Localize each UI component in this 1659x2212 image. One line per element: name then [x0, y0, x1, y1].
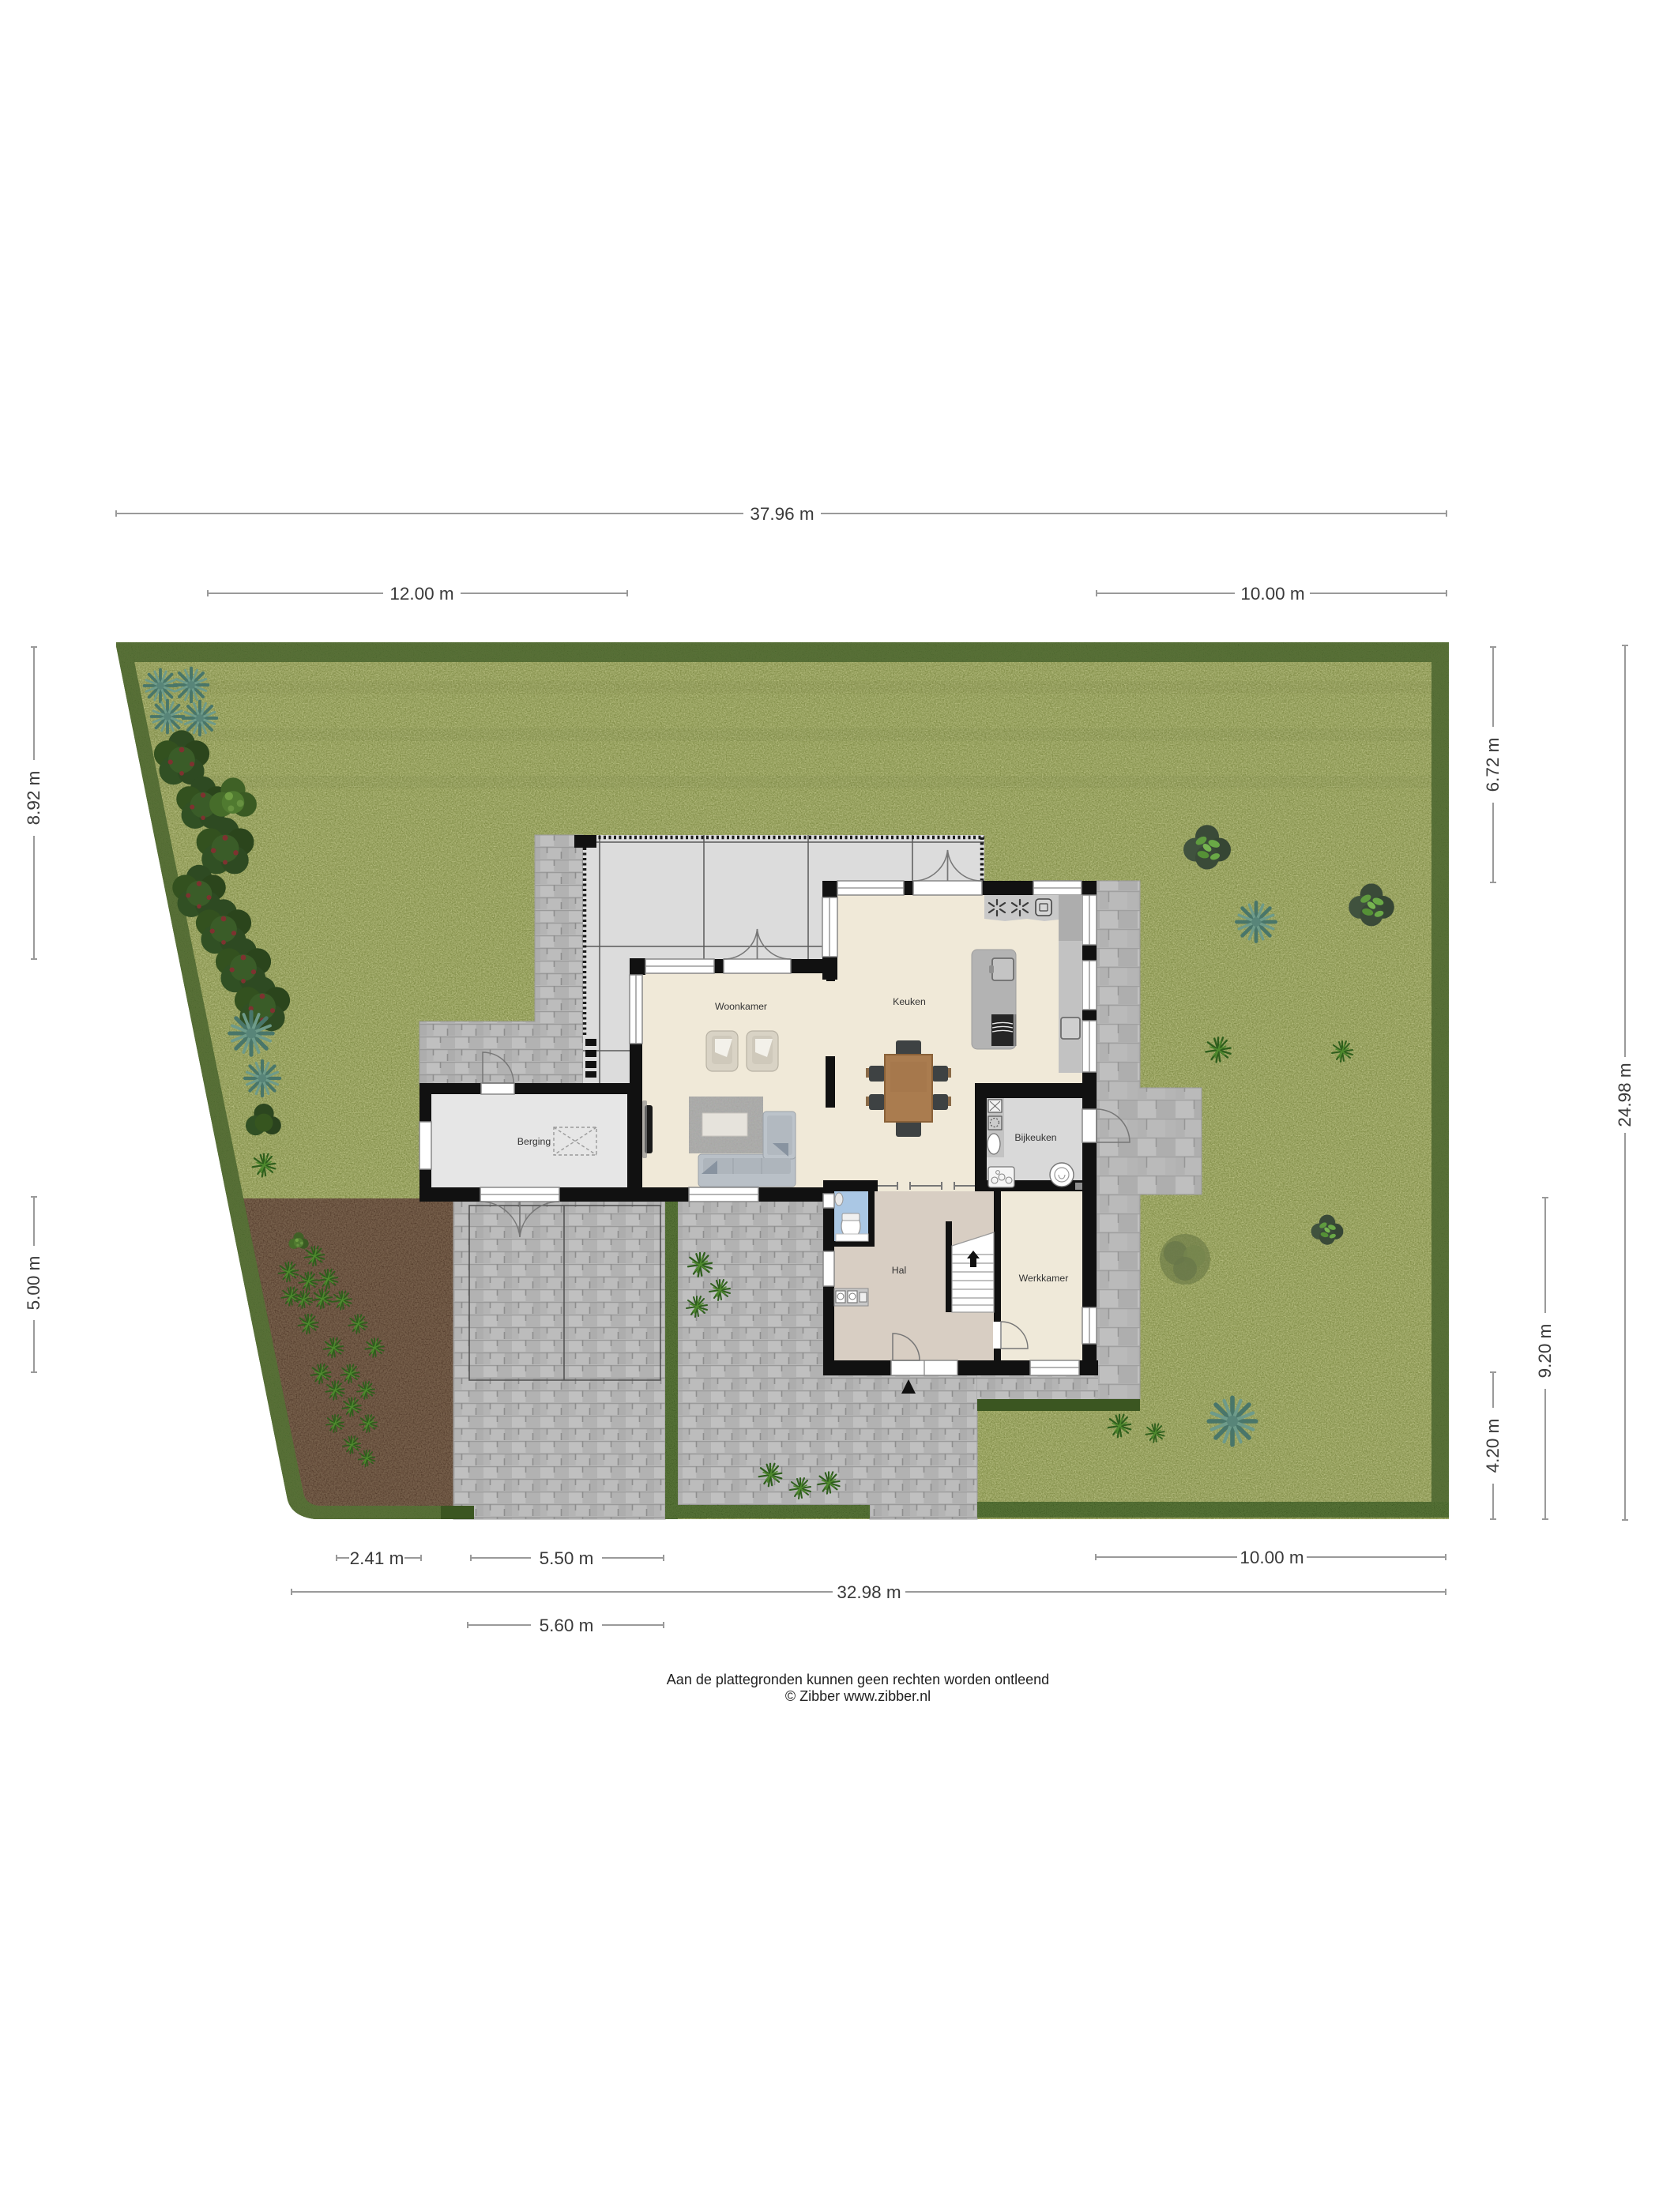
- svg-text:12.00 m: 12.00 m: [389, 584, 453, 604]
- svg-text:Aan de plattegronden kunnen ge: Aan de plattegronden kunnen geen rechten…: [667, 1672, 1049, 1687]
- svg-text:Woonkamer: Woonkamer: [715, 1001, 767, 1012]
- svg-text:Bijkeuken: Bijkeuken: [1014, 1132, 1056, 1143]
- svg-text:4.20 m: 4.20 m: [1483, 1419, 1503, 1473]
- svg-text:Berging: Berging: [517, 1136, 551, 1147]
- svg-text:6.72 m: 6.72 m: [1483, 738, 1503, 792]
- svg-text:37.96 m: 37.96 m: [750, 504, 814, 524]
- svg-text:10.00 m: 10.00 m: [1240, 584, 1304, 604]
- svg-text:5.60 m: 5.60 m: [540, 1616, 594, 1635]
- svg-text:5.00 m: 5.00 m: [24, 1256, 43, 1311]
- svg-text:9.20 m: 9.20 m: [1535, 1324, 1555, 1379]
- svg-text:10.00 m: 10.00 m: [1240, 1548, 1303, 1567]
- svg-text:2.41 m: 2.41 m: [350, 1548, 404, 1568]
- svg-text:8.92 m: 8.92 m: [24, 771, 43, 826]
- svg-text:Werkkamer: Werkkamer: [1019, 1273, 1069, 1284]
- svg-text:© Zibber www.zibber.nl: © Zibber www.zibber.nl: [785, 1688, 931, 1704]
- svg-text:Hal: Hal: [892, 1265, 906, 1276]
- svg-text:Keuken: Keuken: [893, 996, 926, 1007]
- svg-text:24.98 m: 24.98 m: [1615, 1063, 1635, 1127]
- svg-text:32.98 m: 32.98 m: [837, 1582, 901, 1602]
- svg-text:5.50 m: 5.50 m: [540, 1548, 594, 1568]
